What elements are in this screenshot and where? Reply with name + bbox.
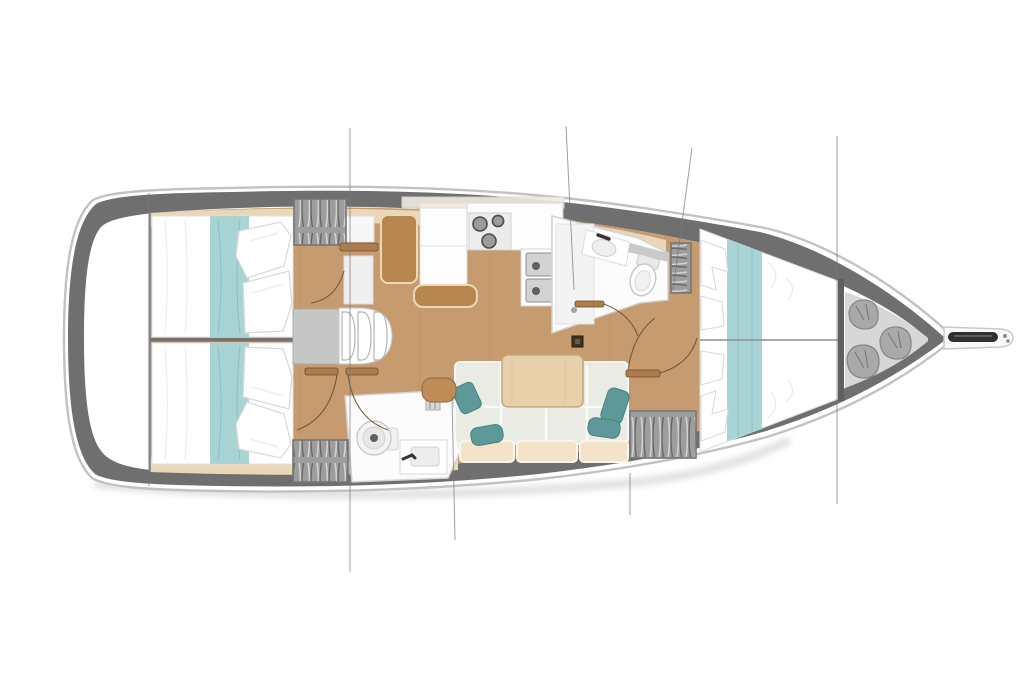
back-cushion-3 [580, 441, 628, 462]
bag-3 [847, 345, 879, 378]
sink-1-drain [532, 262, 540, 270]
chart-table [420, 204, 467, 290]
step-3 [374, 312, 387, 360]
back-cushion-2 [517, 441, 577, 462]
forward-bulkhead [838, 279, 844, 401]
aft-cabin-port [152, 216, 293, 337]
step-2 [358, 312, 371, 360]
bow-sprit [944, 327, 1013, 349]
companionway-landing [293, 309, 339, 364]
bow-fitting-pin-2 [1006, 339, 1010, 343]
sink-2-drain [532, 287, 540, 295]
nav-seat [381, 215, 417, 283]
deck-plan-canvas [0, 0, 1024, 676]
bag-2 [880, 327, 911, 359]
door-leaf-aft-top [340, 243, 378, 251]
shower-drain [571, 307, 577, 313]
burner-2 [492, 215, 503, 226]
aft-cabins-divider-wall [150, 338, 293, 342]
washbasin [400, 440, 447, 474]
nav-bench [414, 285, 477, 307]
door-leaf-aft-bottom-left [305, 368, 338, 375]
burner-1 [473, 217, 487, 231]
toilet-tank-cap [370, 434, 378, 442]
companionway-steps [342, 312, 387, 360]
bag-1 [849, 300, 878, 329]
door-leaf-forward-head [575, 301, 604, 307]
door-leaf-forward-cabin [626, 370, 660, 377]
salon-stool [422, 378, 456, 402]
wardrobe-aft-top [294, 199, 346, 245]
door-leaf-aft-bottom-right [346, 368, 378, 375]
salon-table [502, 355, 583, 407]
anchor-roller [948, 332, 998, 342]
aft-cabin-starboard [152, 343, 293, 464]
companionway-bench-back [344, 256, 373, 304]
yacht-deck-plan [0, 0, 1024, 676]
companionway-bench-seat [344, 216, 374, 242]
aft-head [345, 390, 460, 482]
wardrobe-salon [630, 411, 696, 458]
step-1 [342, 312, 355, 360]
mast-post [572, 336, 583, 347]
bow-fitting-pin-1 [1003, 334, 1007, 338]
burner-3 [482, 234, 496, 248]
wardrobe-aft-bottom [293, 440, 348, 482]
